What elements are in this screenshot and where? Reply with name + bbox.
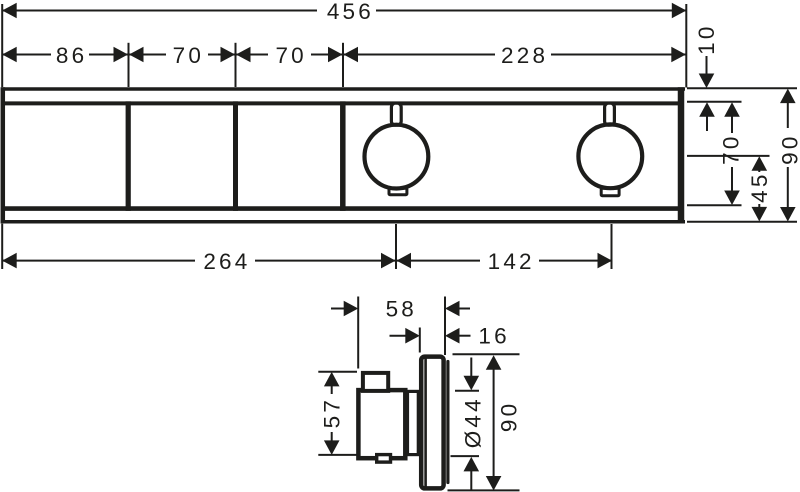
- svg-text:70: 70: [275, 43, 306, 68]
- svg-text:456: 456: [327, 0, 374, 24]
- svg-text:45: 45: [747, 171, 772, 202]
- svg-text:70: 70: [173, 43, 204, 68]
- svg-text:228: 228: [501, 43, 548, 68]
- svg-text:57: 57: [320, 397, 345, 428]
- svg-text:70: 70: [719, 133, 744, 164]
- svg-text:90: 90: [497, 401, 522, 432]
- svg-text:58: 58: [386, 297, 417, 322]
- svg-text:264: 264: [203, 249, 250, 274]
- svg-text:Ø44: Ø44: [461, 396, 486, 448]
- svg-text:90: 90: [778, 133, 800, 164]
- svg-text:86: 86: [56, 43, 87, 68]
- svg-text:142: 142: [488, 249, 535, 274]
- svg-text:10: 10: [694, 23, 719, 54]
- svg-text:16: 16: [478, 324, 509, 349]
